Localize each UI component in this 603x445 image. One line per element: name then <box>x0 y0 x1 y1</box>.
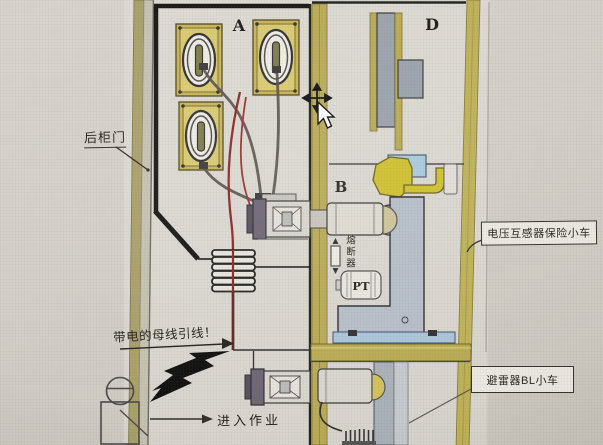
bushing <box>253 20 299 95</box>
compartment-floor <box>310 344 471 362</box>
compartment-a-label: A <box>232 16 246 35</box>
bushing <box>179 102 223 170</box>
vt-fuse-trolley-label-box: 电压互感器保险小车 <box>481 220 597 245</box>
fuse-label: 熔断器 <box>342 235 356 270</box>
screen-photo: A B D PT 后柜门 带电的母线引线！ 进入作业 熔断器 电压互感器保险小车… <box>0 0 603 445</box>
lower-compartment-panels <box>374 362 408 445</box>
enter-work-label: 进入作业 <box>217 409 281 429</box>
coil-insulator <box>212 250 255 292</box>
compartment-d-label: D <box>425 15 439 34</box>
pt-label: PT <box>352 279 370 293</box>
arrester-trolley-label-box: 避雷器BL小车 <box>471 366 574 393</box>
rear-door-label: 后柜门 <box>84 127 126 149</box>
compartment-b-label: B <box>335 178 348 196</box>
